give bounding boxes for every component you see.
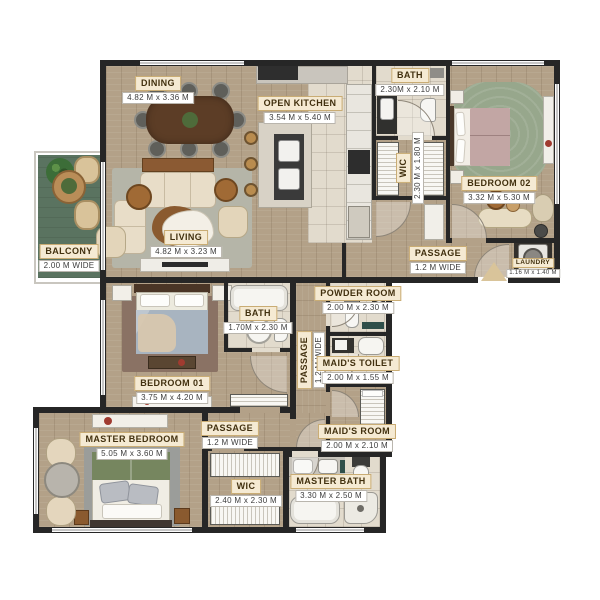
master-bath-towel — [340, 460, 345, 473]
window — [296, 527, 364, 533]
balcony-table-plant — [61, 178, 77, 194]
wall — [372, 66, 376, 200]
bedroom02-nightstand — [450, 90, 464, 104]
kitchen-fridge — [348, 206, 370, 238]
wall — [202, 413, 208, 527]
wic-top-closet-right — [422, 142, 444, 196]
maids-toilet-tub — [358, 337, 384, 355]
door-gap — [452, 238, 486, 243]
window — [452, 60, 544, 66]
bath-mid-sink — [246, 318, 272, 344]
door-gap — [290, 419, 296, 447]
wic-bottom-closet-top — [210, 453, 280, 477]
living-console — [142, 158, 214, 172]
bedroom01-nightstand — [112, 285, 132, 301]
bedroom01-foot-bench — [148, 356, 196, 369]
bath-mid-tub — [230, 285, 288, 311]
kitchen-stool — [244, 183, 258, 197]
window — [140, 60, 244, 66]
kitchen-stool — [244, 131, 258, 145]
bedroom02-coffee-table — [506, 198, 520, 212]
bedroom02-pillow — [455, 139, 466, 164]
wall — [342, 243, 346, 277]
master-duvet-green — [92, 452, 170, 480]
bedroom01-closet — [230, 394, 288, 407]
maids-toilet-sink — [335, 340, 347, 350]
window — [33, 428, 39, 514]
washer-drum — [523, 248, 543, 268]
wall — [283, 457, 289, 527]
bedroom02-desk — [543, 96, 554, 164]
wall — [330, 332, 386, 336]
kitchen-sink — [278, 168, 300, 190]
living-armchair — [218, 206, 248, 238]
kitchen-stool — [244, 157, 258, 171]
wall — [386, 283, 392, 457]
kitchen-sink — [278, 140, 300, 162]
wall — [100, 277, 478, 283]
bath-top-sink — [380, 98, 394, 120]
window — [52, 527, 192, 533]
bedroom01-pillow — [140, 294, 170, 307]
wall — [224, 283, 228, 352]
master-nightstand — [174, 508, 190, 524]
wall — [33, 407, 100, 413]
door-gap — [326, 392, 330, 416]
door-gap — [326, 356, 330, 380]
master-round-table — [44, 462, 80, 498]
door-gap — [212, 447, 244, 451]
wic-bottom-closet-bottom — [210, 505, 280, 525]
door-gap — [326, 302, 330, 326]
powder-sink — [374, 292, 384, 302]
door-gap — [252, 348, 280, 352]
master-bath-toilet-bowl — [353, 465, 369, 485]
wall — [508, 277, 560, 283]
master-chair — [46, 496, 76, 526]
bedroom02-coffee-table — [486, 190, 506, 210]
living-coffee-table — [162, 210, 214, 248]
wall — [380, 457, 386, 533]
window — [554, 84, 560, 204]
tv-screen — [162, 262, 208, 267]
window — [100, 300, 106, 395]
door-gap — [398, 136, 432, 140]
wall — [330, 383, 386, 387]
bedroom02-pillow — [455, 112, 466, 137]
bedroom02-desk-plant — [545, 140, 552, 147]
bedroom02-chair — [532, 194, 554, 222]
door-gap — [292, 451, 318, 457]
foyer-cabinet — [424, 204, 444, 240]
master-pillow-white — [102, 504, 162, 519]
balcony-sliding-door — [100, 162, 106, 270]
bedroom02-bench — [478, 208, 532, 228]
dining-centerpiece-plant — [182, 112, 198, 128]
shower-drain — [357, 505, 364, 512]
bench-decor — [178, 359, 185, 366]
door-gap — [240, 407, 280, 413]
bath-top-towel-rack — [430, 68, 444, 78]
powder-mat — [362, 322, 384, 329]
floor-plan: DINING 4.82 M x 3.36 M OPEN KITCHEN 3.54… — [0, 0, 600, 600]
master-nightstand — [74, 510, 89, 525]
bedroom02-duvet — [470, 108, 510, 166]
bedroom01-throw — [138, 314, 176, 352]
master-bath-sink — [318, 459, 338, 474]
living-sofa-main — [140, 172, 216, 208]
maids-bed-pillow — [362, 390, 383, 397]
bedroom02-pouf — [534, 224, 548, 238]
balcony-chair — [74, 200, 100, 230]
bedroom01-pillow — [174, 294, 204, 307]
living-side-table — [214, 178, 238, 202]
bedroom02-nightstand — [450, 170, 464, 184]
kitchen-oven — [348, 150, 370, 174]
master-bathtub — [290, 496, 340, 524]
living-side-table — [126, 184, 152, 210]
dresser-decor — [144, 399, 150, 405]
bedroom01-nightstand — [212, 285, 232, 301]
wall — [446, 66, 450, 238]
console-flowers — [104, 417, 112, 425]
kitchen-stove — [258, 66, 298, 80]
wic-top-closet-left — [377, 142, 399, 196]
wall — [372, 196, 446, 200]
bath-mid-toilet — [274, 318, 288, 342]
